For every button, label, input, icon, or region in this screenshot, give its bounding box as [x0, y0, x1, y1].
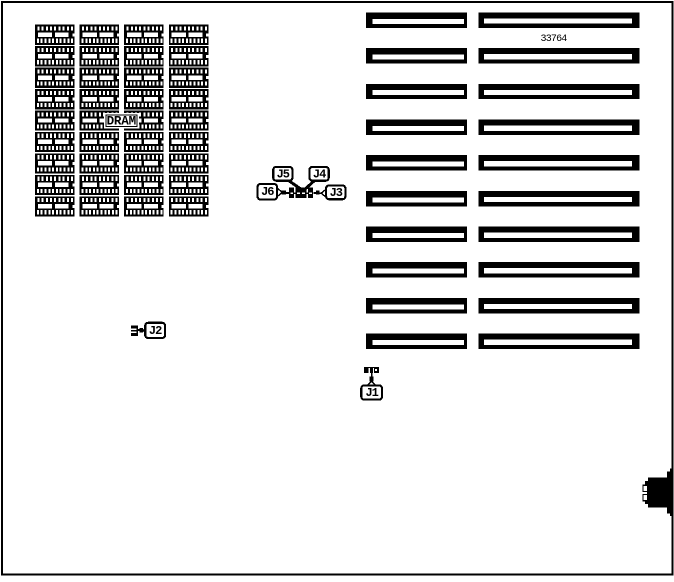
svg-text:J6: J6	[261, 185, 274, 199]
svg-text:J1: J1	[365, 386, 378, 400]
svg-text:DRAM: DRAM	[107, 115, 136, 129]
svg-text:33764: 33764	[541, 34, 568, 45]
svg-text:J2: J2	[149, 324, 162, 338]
svg-text:J4: J4	[313, 167, 326, 181]
svg-text:J5: J5	[277, 167, 290, 181]
svg-text:J3: J3	[330, 186, 343, 200]
